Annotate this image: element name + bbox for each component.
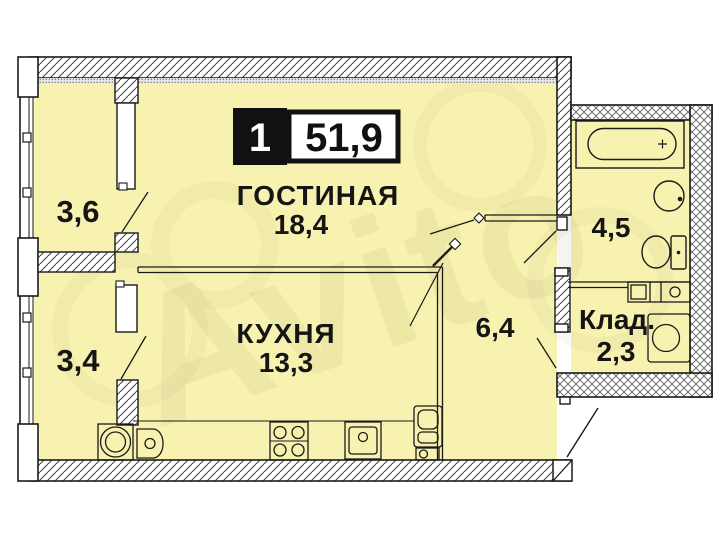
label-kitchen-area: 13,3: [259, 347, 314, 378]
partition-stub-top: [115, 78, 138, 103]
wall-cap-icon: [560, 397, 570, 404]
wall-pier-mid-left: [18, 238, 38, 296]
wall-top: [30, 57, 571, 78]
partition-pier-kitchen: [117, 380, 138, 425]
wall-hall-bath-segment: [555, 268, 570, 332]
wall-living-right: [557, 57, 571, 215]
wall-between-balconies: [38, 252, 115, 272]
label-kitchen-name: КУХНЯ: [236, 318, 335, 349]
wall-cap-icon: [555, 268, 568, 276]
wall-annex-right: [690, 105, 712, 397]
wall-cap-icon: [555, 324, 568, 332]
label-living-area: 18,4: [274, 209, 329, 240]
label-storage-area: 2,3: [597, 336, 636, 367]
window-mullion-icon: [23, 133, 31, 142]
window-mullion-icon: [23, 188, 31, 197]
wall-bottom: [30, 460, 571, 481]
label-bathroom-area: 4,5: [592, 212, 631, 243]
label-living-name: ГОСТИНАЯ: [237, 180, 400, 211]
entrance-door-icon: [553, 408, 598, 481]
label-balcony-bottom-area: 3,4: [56, 343, 100, 378]
title-badge: 1 51,9: [233, 108, 398, 165]
label-hallway-area: 6,4: [476, 312, 515, 343]
badge-total-area: 51,9: [305, 116, 383, 160]
label-balcony-top-area: 3,6: [56, 194, 99, 229]
label-storage-name: Клад.: [579, 304, 655, 335]
wall-pier-bottom-left: [18, 424, 38, 481]
floor-plan-svg: Avito: [0, 0, 720, 534]
window-mullion-icon: [23, 368, 31, 377]
wall-top-insulation: [33, 78, 557, 84]
wall-annex-bottom: [557, 373, 712, 397]
wall-pier-top-left: [18, 57, 38, 97]
floor-plan-image: Avito: [0, 0, 720, 534]
wall-cap-icon: [557, 217, 567, 230]
badge-rooms-count: 1: [249, 116, 271, 160]
partition-stub-mid: [115, 233, 138, 252]
window-mullion-icon: [23, 313, 31, 322]
